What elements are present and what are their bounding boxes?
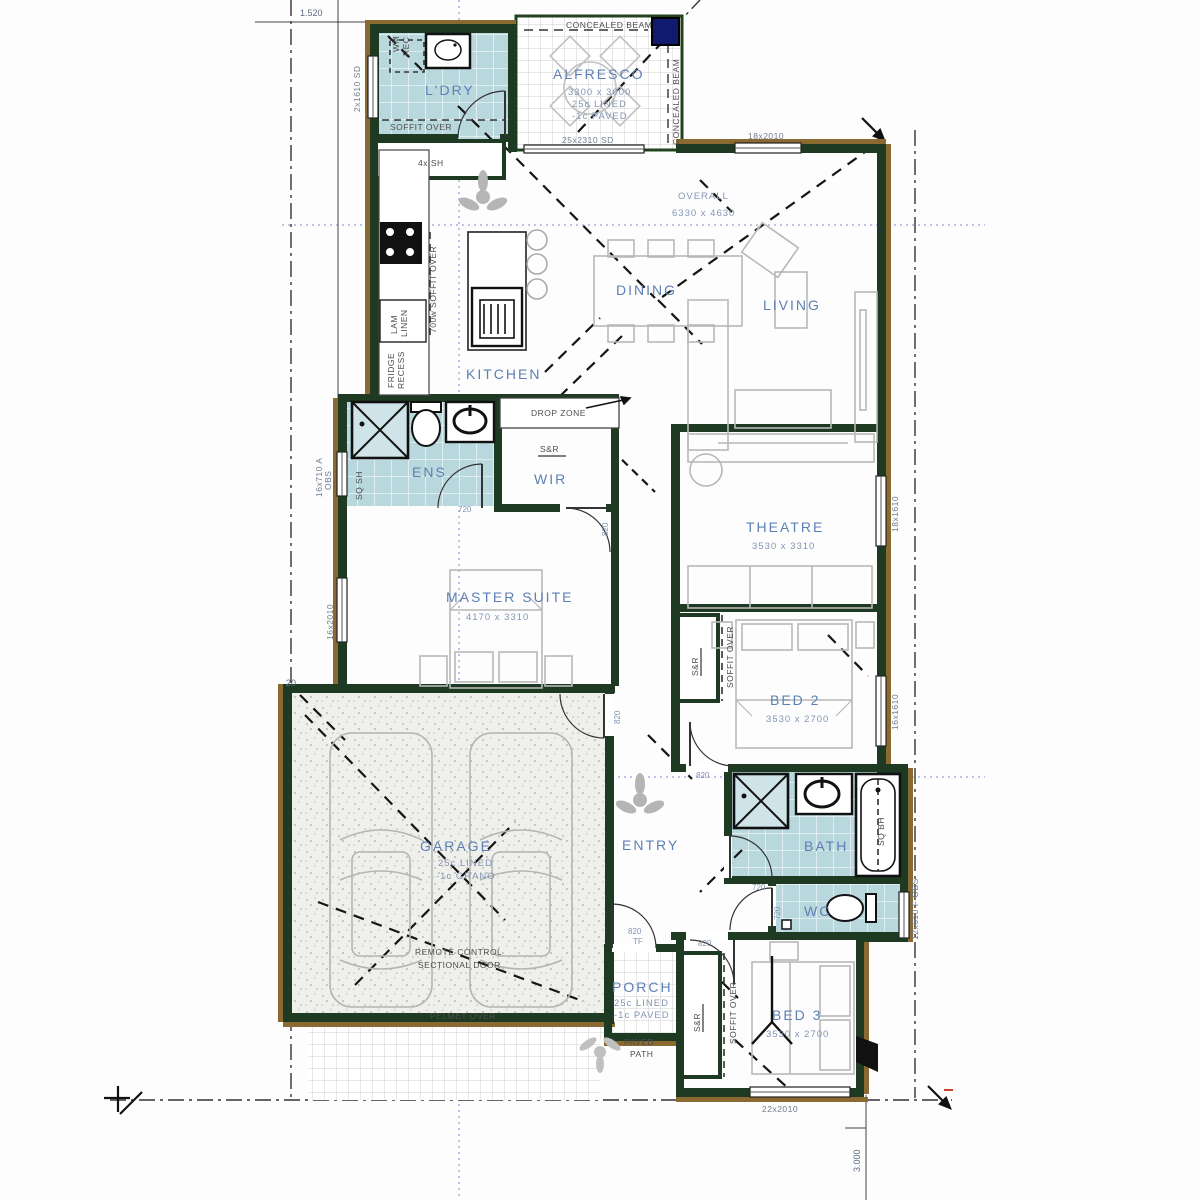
dim-lot: 20 xyxy=(286,678,296,688)
room-label-ldry: L'DRY xyxy=(425,82,475,98)
soffit-ldry: SOFFIT OVER xyxy=(390,122,452,132)
overall-dim: 6330 x 4630 xyxy=(672,208,735,219)
win-wc: 12x610 F OBS xyxy=(910,878,920,940)
alfresco-dim: 3300 x 3000 xyxy=(568,87,631,98)
room-label-master: MASTER SUITE xyxy=(446,589,573,605)
theatre-dim: 3530 x 3310 xyxy=(752,541,815,552)
win-alfresco: 25x2310 SD xyxy=(562,135,614,145)
door-front: 820 xyxy=(628,927,642,936)
room-label-bed2: BED 2 xyxy=(770,692,820,708)
room-label-alfresco: ALFRESCO xyxy=(553,66,644,82)
rec-label: REC xyxy=(401,37,411,56)
linen-label: LINEN xyxy=(399,309,409,337)
porch-paved: -1c PAVED xyxy=(614,1010,670,1021)
concealed-beam-top: CONCEALED BEAM xyxy=(566,20,652,30)
door-ens: 720 xyxy=(458,505,472,514)
overall-label: OVERALL xyxy=(678,191,729,202)
win-ldry: 2x1610 SD xyxy=(352,65,362,112)
sr-bed3: S&R xyxy=(692,1013,702,1032)
lam-label: LAM xyxy=(389,315,399,334)
drop-zone-label: DROP ZONE xyxy=(531,408,586,418)
win-bed2: 16x1610 xyxy=(890,694,900,730)
room-label-wc: WC xyxy=(804,903,831,919)
room-label-wir: WIR xyxy=(534,471,567,487)
door-garage: 820 xyxy=(613,710,622,724)
room-label-theatre: THEATRE xyxy=(746,519,824,535)
remote-line2: SECTIONAL DOOR xyxy=(418,960,501,970)
win-master: 16x2010 xyxy=(325,604,335,640)
room-label-entry: ENTRY xyxy=(622,837,679,853)
garage-grano: -1c GRANO xyxy=(436,871,496,882)
garage-lined: 25c LINED xyxy=(438,858,493,869)
concealed-beam-right: CONCEALED BEAM xyxy=(671,59,681,145)
alfresco-post xyxy=(652,18,679,45)
win-theatre: 18x1610 xyxy=(890,496,900,532)
pelmet-label: PELMET OVER xyxy=(430,1011,496,1021)
sq-sh-label: SQ SH xyxy=(354,471,364,500)
room-label-living: LIVING xyxy=(763,297,821,313)
path-label: PATH xyxy=(630,1049,653,1059)
room-label-porch: PORCH xyxy=(612,979,673,995)
door-wir: 820 xyxy=(601,522,610,536)
ens-toilet xyxy=(411,402,441,446)
win-ens-b: OBS xyxy=(323,471,333,490)
sr-bed2: S&R xyxy=(690,657,700,676)
sq-bh-label: SQ BH xyxy=(876,817,886,846)
bed3-dim: 3530 x 2700 xyxy=(766,1029,829,1040)
room-label-kitchen: KITCHEN xyxy=(466,366,541,382)
remote-line1: REMOTE CONTROL xyxy=(415,947,502,957)
door-wc: 720 xyxy=(773,906,782,920)
alfresco-paved: -1c PAVED xyxy=(572,111,628,122)
wm-label: WM xyxy=(391,36,401,52)
room-label-bath: BATH xyxy=(804,838,848,854)
bed2-dim: 3530 x 2700 xyxy=(766,714,829,725)
door-front-tf: TF xyxy=(633,937,643,946)
soffit-700: 700w SOFFIT OVER xyxy=(428,246,438,333)
room-label-dining: DINING xyxy=(616,282,677,298)
floor-plan-page: L'DRY ALFRESCO 3300 x 3000 25c LINED -1c… xyxy=(0,0,1200,1200)
room-label-garage: GARAGE xyxy=(420,838,492,854)
win-living: 18x2010 xyxy=(748,131,784,141)
shelves-label: 4x SH xyxy=(418,158,444,168)
door-bath: 720 xyxy=(752,883,766,892)
dim-top: 1.520 xyxy=(300,8,323,18)
fridge-label: FRIDGE xyxy=(386,353,396,388)
recess-label: RECESS xyxy=(396,351,406,389)
door-bed2: 820 xyxy=(696,771,710,780)
room-label-bed3: BED 3 xyxy=(772,1007,822,1023)
win-bed3: 22x2010 xyxy=(762,1104,798,1114)
ceiling-fan-entry xyxy=(614,773,666,816)
door-bed3: 820 xyxy=(698,939,712,948)
soffit-bed2: SOFFIT OVER xyxy=(725,626,735,688)
soffit-bed3: SOFFIT OVER xyxy=(728,982,738,1044)
alfresco-lined: 25c LINED xyxy=(572,99,627,110)
master-dim: 4170 x 3310 xyxy=(466,612,529,623)
sr-wir: S&R xyxy=(540,444,559,454)
room-label-ens: ENS xyxy=(412,464,447,480)
porch-lined: 25c LINED xyxy=(614,998,669,1009)
paved-label: PAVED xyxy=(624,1037,654,1047)
dim-bottom: 3.000 xyxy=(852,1149,862,1172)
floor-plan-drawing: L'DRY ALFRESCO 3300 x 3000 25c LINED -1c… xyxy=(0,0,1200,1200)
